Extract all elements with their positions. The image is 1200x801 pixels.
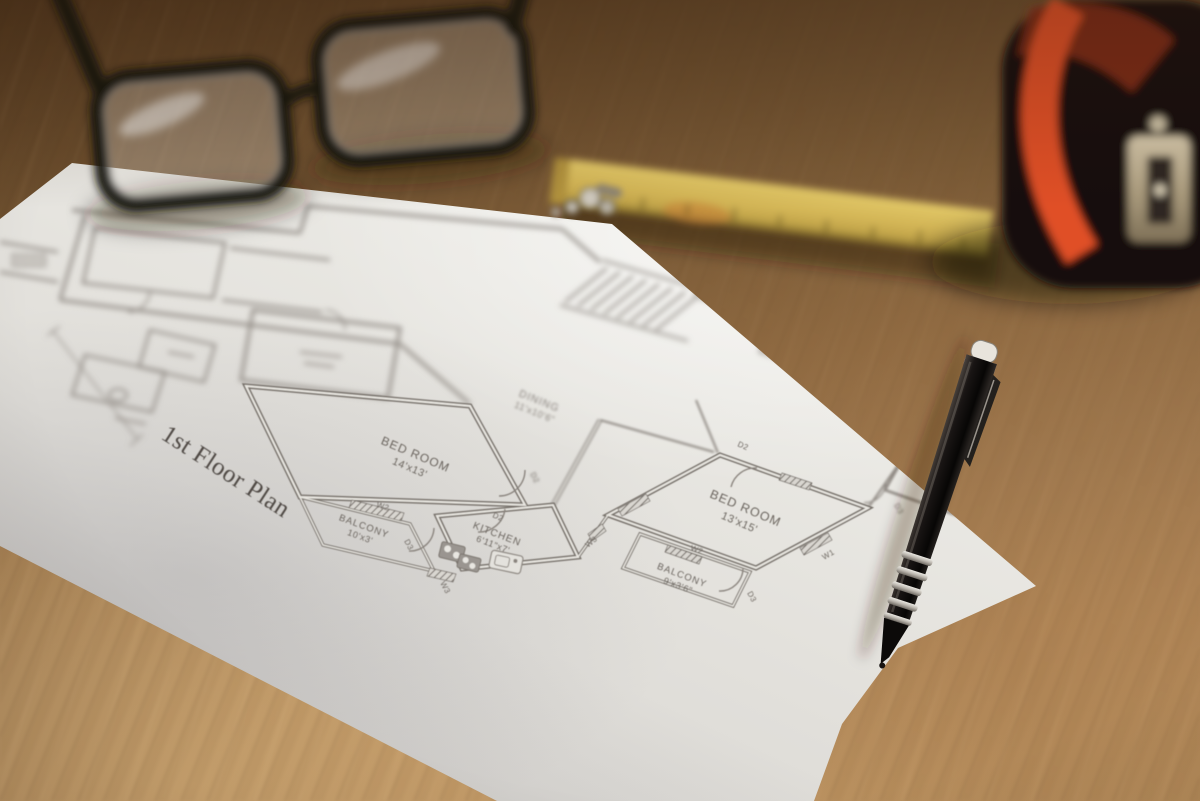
ruler-hinge-clasp [0, 0, 1200, 801]
photo-scene: DINING 11'x10'6" BED ROOM 13'x13'9" BALC… [0, 0, 1200, 801]
